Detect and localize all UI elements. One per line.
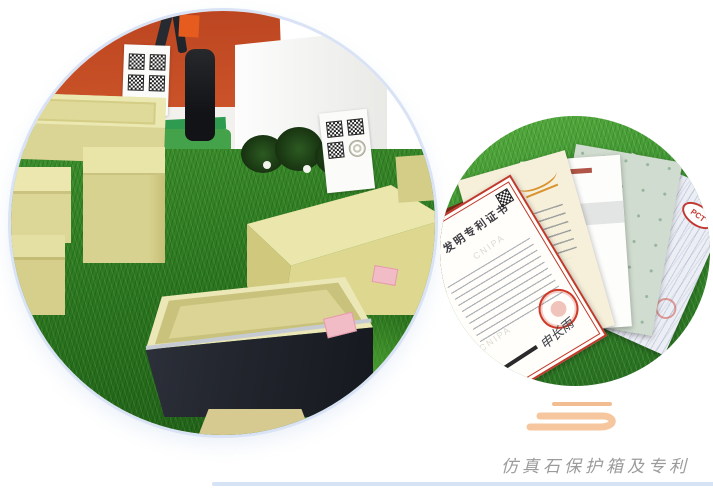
white-flower [303,165,311,173]
page-caption: 仿真石保护箱及专利 [501,452,690,477]
stone-box [395,153,438,203]
qr-code-icon [128,53,145,70]
qr-code-icon [346,118,364,136]
box-lid [83,147,165,175]
cloud-swirl-icon [518,392,638,436]
pct-logo: PCT [677,196,710,234]
qr-code-icon [325,120,343,138]
white-flower [263,161,271,169]
round-seal-icon [348,139,367,158]
qr-code-sign [319,109,375,194]
qr-code-icon [327,141,345,159]
exhibition-photo [8,8,438,438]
booth-signage [178,14,199,37]
stone-box-lidded [8,235,65,315]
qr-code-icon [148,75,165,92]
stone-box [83,147,165,263]
qr-code-icon [149,54,166,71]
certificates-photo: PCT t 发明专利证书 [440,116,710,386]
dark-vase [185,49,215,141]
qr-code-icon [127,74,144,91]
divider-line [212,482,713,486]
box-lid [8,167,71,194]
stone-box-lidded [8,167,71,243]
box-pedestal [197,409,313,438]
page: PCT t 发明专利证书 [0,0,713,488]
box-lid [8,235,65,260]
dark-protection-box [141,277,373,417]
